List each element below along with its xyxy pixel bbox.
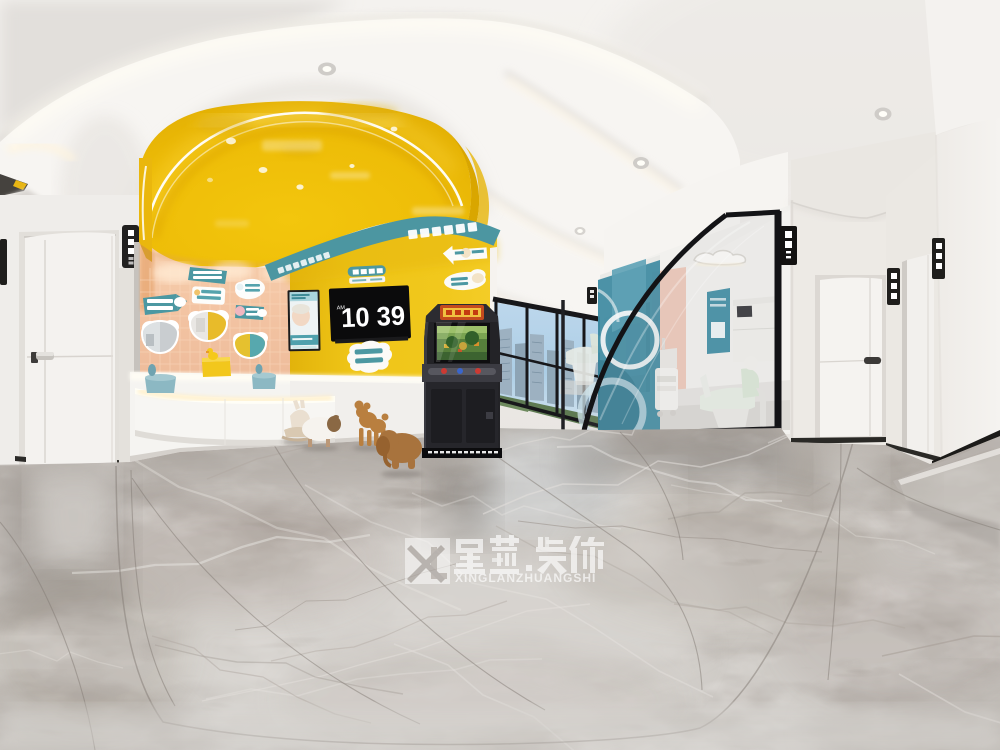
- svg-text:XINGLANZHUANGSHI: XINGLANZHUANGSHI: [455, 571, 596, 585]
- svg-text:AM: AM: [337, 305, 346, 311]
- svg-text:10 39: 10 39: [340, 300, 405, 333]
